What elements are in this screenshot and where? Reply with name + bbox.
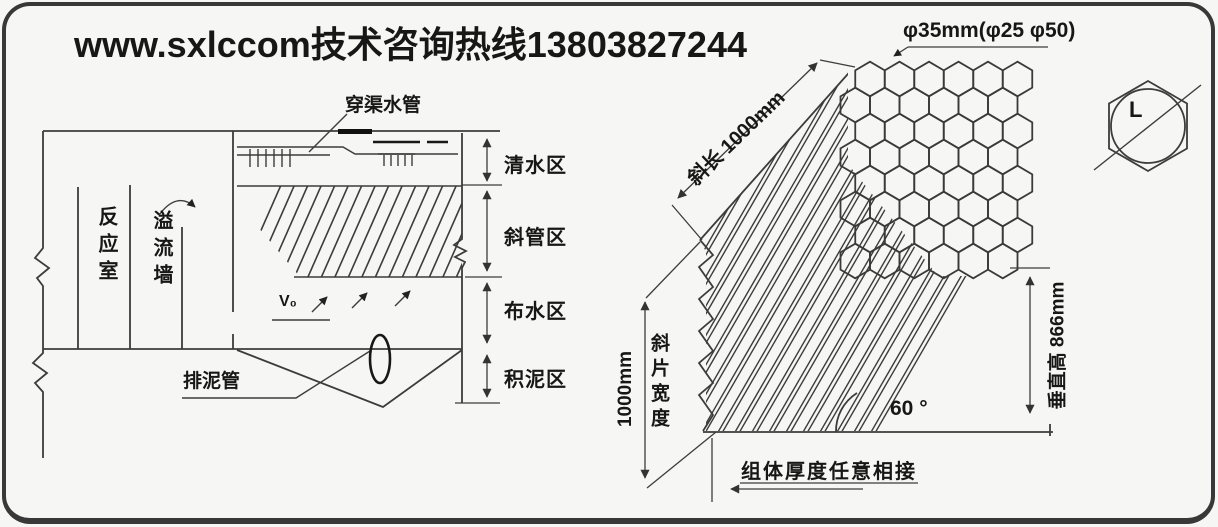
honeycomb-cell — [900, 244, 930, 279]
zone-label-distribution: 布水区 — [504, 295, 574, 324]
flow-arrow-3 — [395, 291, 410, 306]
diagram-page: www.sxlccom技术咨询热线13803827244 穿渠水管 清水区 斜管… — [0, 0, 1218, 527]
zone-label-inclined-tube: 斜管区 — [504, 221, 574, 250]
honeycomb-face — [841, 56, 1037, 278]
overflow-wall-label: 溢流墙 — [147, 210, 176, 291]
reaction-chamber-label: 反应室 — [92, 206, 121, 287]
collection-trough — [237, 114, 458, 167]
hex-detail-letter: L — [1129, 97, 1142, 123]
angle-label: 60 ° — [890, 397, 928, 421]
flow-arrow-1 — [312, 297, 327, 312]
tank-left-wall — [33, 131, 49, 458]
trough-orifice-ticks-right — [384, 155, 412, 166]
sludge-pipe-label: 排泥管 — [183, 366, 240, 393]
tube-diameter-label: φ35mm(φ25 φ50) — [903, 19, 1075, 43]
detail-hexagon — [1109, 81, 1187, 171]
watermark-text: www.sxlccom技术咨询热线13803827244 — [74, 16, 747, 68]
hatch-lines — [240, 185, 511, 278]
hatch-boundaries — [237, 186, 462, 277]
pipe-section-dash — [338, 129, 372, 134]
channel-pipe-label: 穿渠水管 — [345, 90, 421, 117]
zone-label-sludge: 积泥区 — [504, 363, 574, 392]
hexagon-detail — [1094, 81, 1201, 171]
diameter-leader — [894, 47, 1048, 56]
settler-diagram-canvas — [0, 0, 1218, 527]
detail-circle — [1111, 89, 1185, 163]
velocity-label: V₀ — [279, 293, 297, 311]
trough-lines — [237, 147, 458, 155]
flow-arrow-2 — [352, 293, 367, 308]
trough-orifice-ticks-left — [250, 149, 290, 167]
sheet-width-label: 斜片宽度 — [645, 333, 672, 433]
inclined-tube-hatch — [237, 185, 511, 278]
sludge-pipe-oval — [370, 335, 390, 383]
zone-label-clear-water: 清水区 — [504, 149, 574, 178]
sheet-width-value: 1000mm — [615, 329, 637, 449]
tank-outline — [33, 131, 500, 458]
module-note-label: 组体厚度任意相接 — [741, 455, 917, 484]
vertical-height-label: 垂直高 866mm — [1043, 261, 1070, 431]
